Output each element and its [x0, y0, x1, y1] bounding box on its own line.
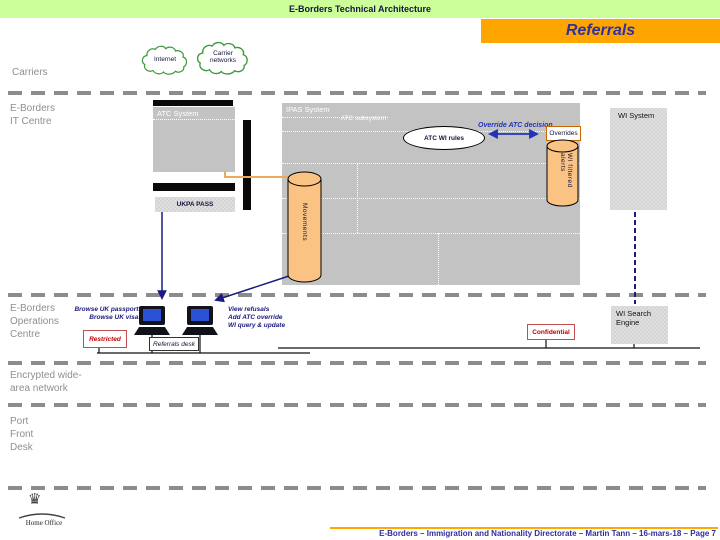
- lane-divider: [8, 361, 706, 365]
- lane-label-it-centre: E-Borders IT Centre: [10, 102, 55, 128]
- monitor-right-notes: View refusals Add ATC override WI query …: [228, 306, 308, 330]
- home-office-label: Home Office: [12, 519, 76, 527]
- slide: E-Borders Technical Architecture Referra…: [0, 0, 720, 540]
- workstation-icon: [134, 306, 170, 336]
- internet-cloud: Internet: [141, 43, 189, 77]
- carrier-networks-cloud: Carrier networks: [196, 39, 250, 77]
- referrals-banner: Referrals: [481, 19, 720, 43]
- restricted-badge: Restricted: [83, 330, 127, 348]
- wi-search-engine-box: WI Search Engine: [611, 306, 668, 344]
- atc-top-bar: [153, 100, 233, 106]
- lane-divider: [8, 486, 706, 490]
- page-title: E-Borders Technical Architecture: [289, 4, 431, 14]
- overrides-box: Overrides: [546, 126, 581, 141]
- home-office-logo: ♛ Home Office: [18, 493, 70, 527]
- lane-divider: [8, 293, 706, 297]
- firewall-bar: [243, 120, 251, 210]
- monitor-left-notes: Browse UK passports Browse UK visas: [60, 306, 142, 322]
- atc-wi-rules-ellipse: ATC WI rules: [403, 126, 485, 150]
- banner-title: Referrals: [566, 22, 635, 40]
- arc-icon: [18, 509, 66, 519]
- lane-label-port-front-desk: Port Front Desk: [10, 415, 33, 454]
- ukpa-pass-box: UKPA PASS: [155, 197, 235, 212]
- ipas-system-title: IPAS System: [282, 103, 580, 114]
- atc-subsystem-label: ATC subsystem: [282, 115, 386, 122]
- atc-system-box: ATC System: [153, 107, 235, 172]
- confidential-badge: Confidential: [527, 324, 575, 340]
- wi-system-box: WI System: [610, 108, 667, 210]
- lane-label-encrypted-wan: Encrypted wide- area network: [10, 369, 82, 395]
- atc-bottom-bar: [153, 183, 235, 191]
- footer-credit: E-Borders – Immigration and Nationality …: [0, 529, 716, 538]
- crown-icon: ♛: [28, 490, 41, 508]
- referrals-desk-label: Referrals desk: [149, 337, 199, 351]
- lane-label-operations-centre: E-Borders Operations Centre: [10, 302, 59, 341]
- wi-system-title: WI System: [610, 108, 667, 120]
- atc-system-title: ATC System: [153, 107, 235, 118]
- lane-divider: [8, 403, 706, 407]
- header-title-bar: E-Borders Technical Architecture: [0, 0, 720, 18]
- lane-label-carriers: Carriers: [12, 66, 48, 79]
- lane-divider: [8, 91, 706, 95]
- workstation-icon: [182, 306, 218, 336]
